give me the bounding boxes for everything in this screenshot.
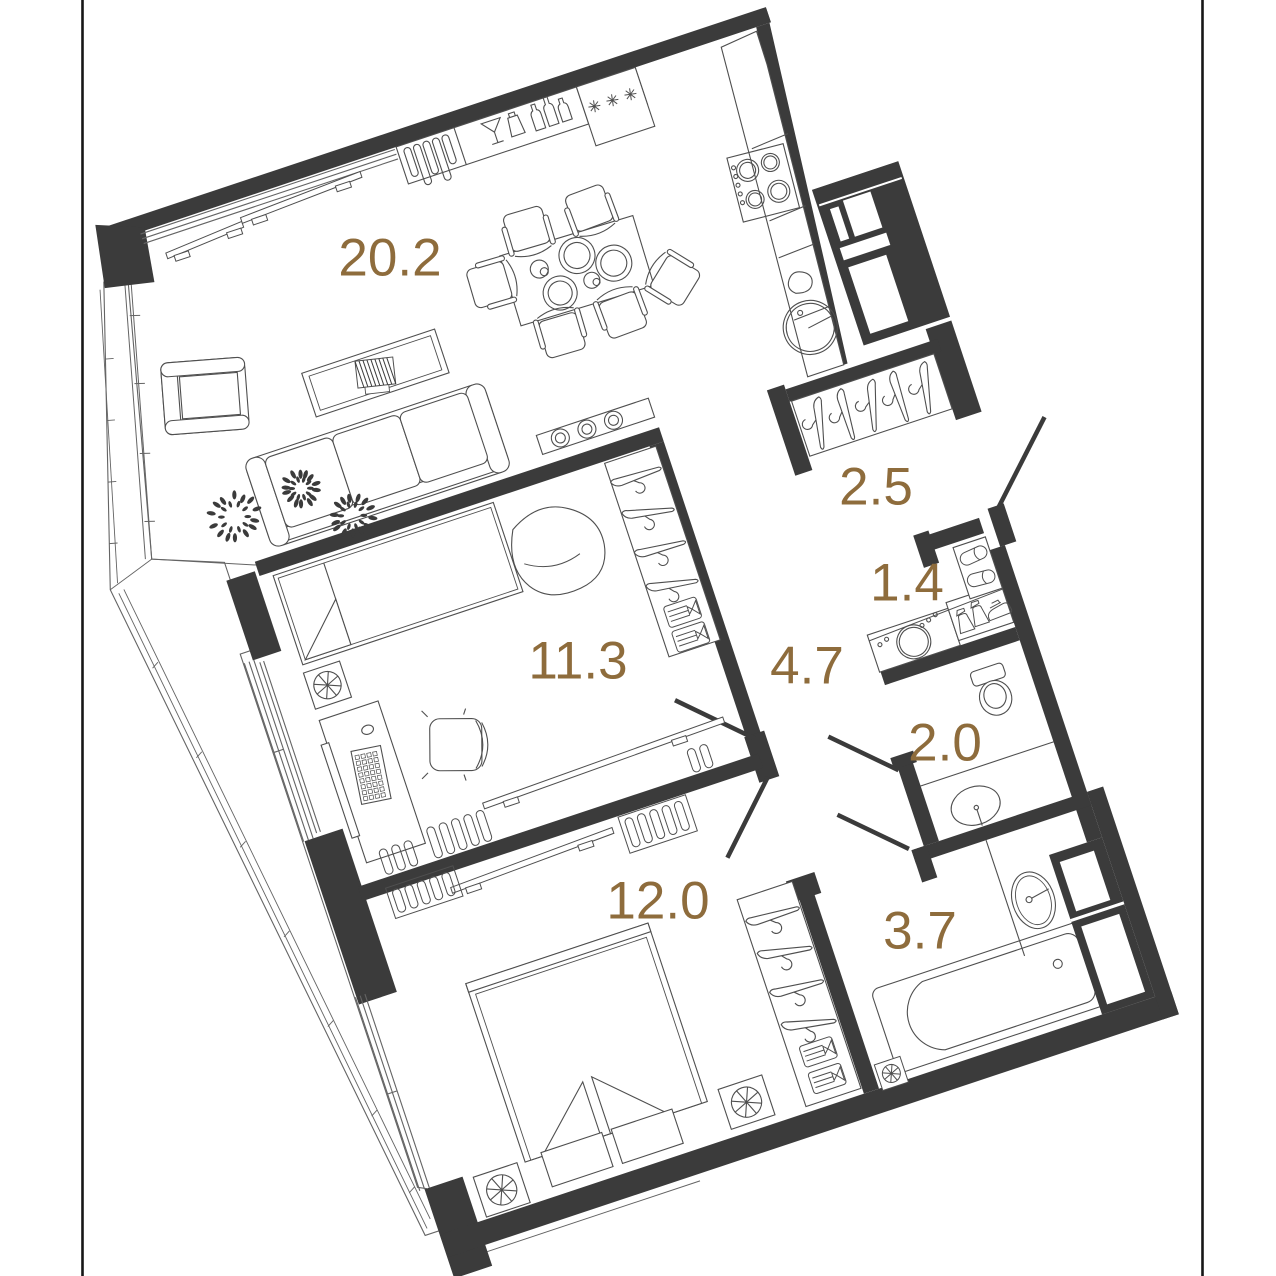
svg-text:1.4: 1.4: [870, 554, 944, 613]
svg-text:4.7: 4.7: [770, 637, 844, 696]
svg-text:11.3: 11.3: [528, 632, 627, 691]
svg-text:2.5: 2.5: [839, 458, 913, 517]
svg-text:20.2: 20.2: [338, 229, 441, 288]
svg-text:12.0: 12.0: [606, 872, 709, 931]
svg-text:3.7: 3.7: [883, 902, 957, 961]
svg-text:2.0: 2.0: [908, 714, 982, 773]
